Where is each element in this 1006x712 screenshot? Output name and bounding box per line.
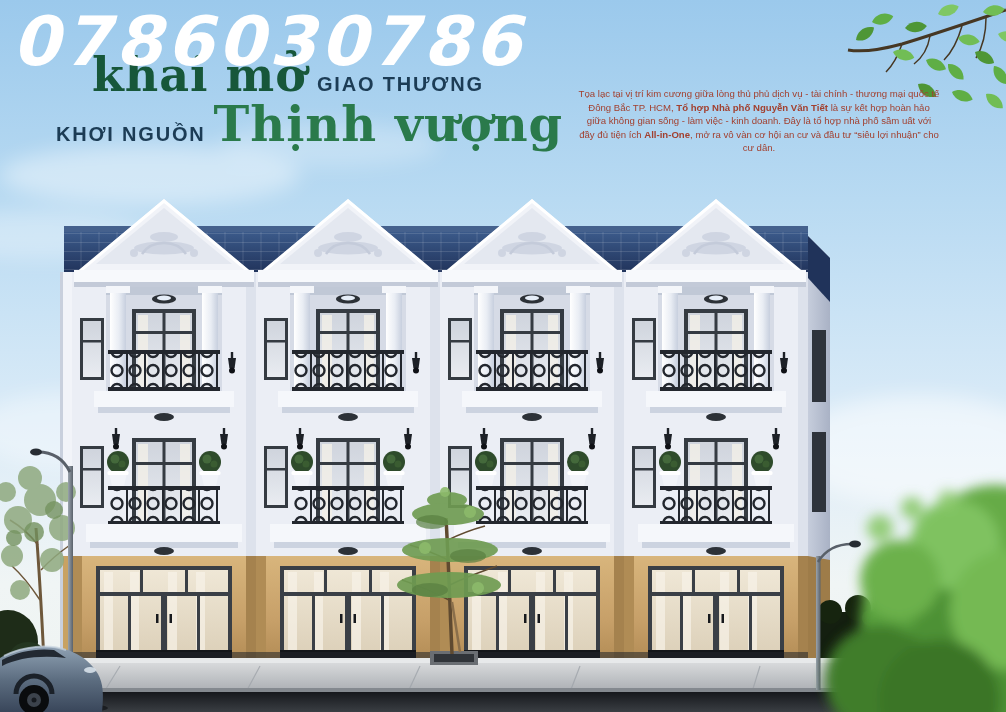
headline-caps-2: KHƠI NGUỒN — [56, 123, 206, 146]
headline-serif-2: Thịnh vượng — [214, 96, 564, 152]
body-segment-bold: Tổ hợp Nhà phố Nguyễn Văn Tiết — [676, 102, 828, 113]
real-estate-poster: 0786030786 khai mở GIAO THƯƠNG KHƠI NGUỒ… — [0, 0, 1006, 712]
body-segment-bold: All-in-One — [644, 129, 690, 140]
townhouse-unit — [624, 199, 808, 662]
headline-line-2: KHƠI NGUỒN Thịnh vượng — [56, 96, 563, 152]
body-copy: Tọa lạc tại vị trí kim cương giữa lòng t… — [578, 87, 940, 155]
body-segment: , mở ra vô vàn cơ hội an cư và đầu tư “s… — [690, 129, 939, 154]
townhouse-unit — [72, 199, 256, 662]
phone-number: 0786030786 — [12, 2, 525, 81]
